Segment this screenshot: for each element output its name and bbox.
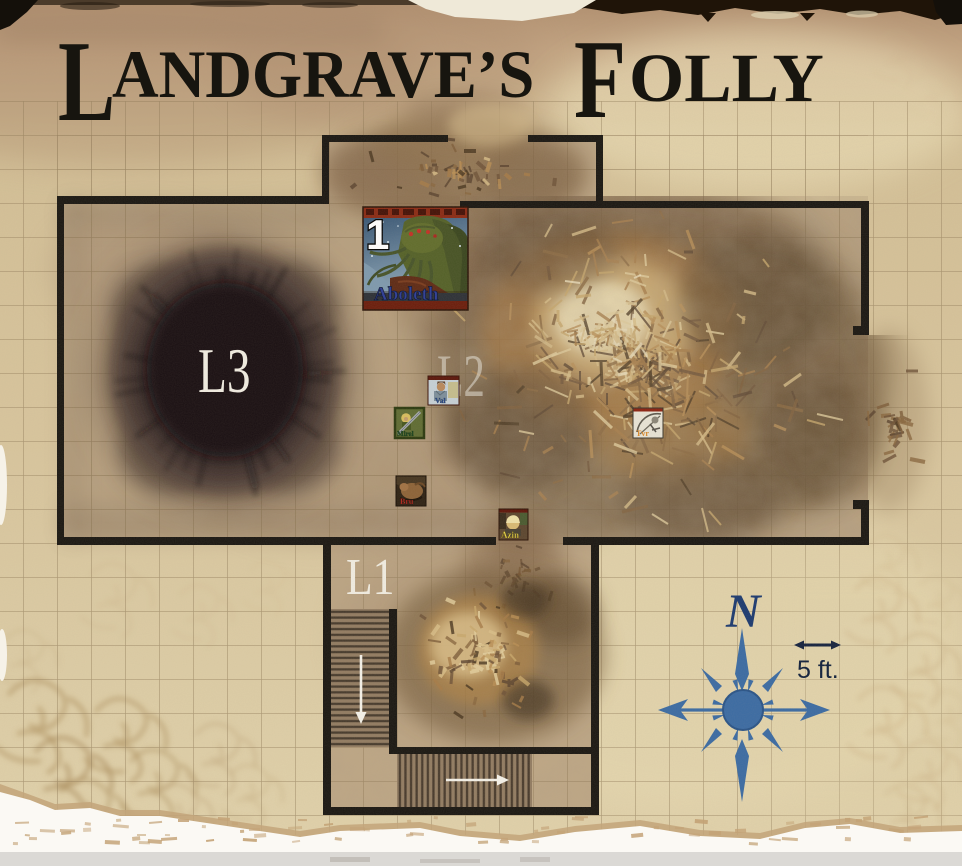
svg-text:OLLY: OLLY <box>629 41 824 117</box>
svg-text:F: F <box>574 17 626 142</box>
svg-text:ANDGRAVE’S: ANDGRAVE’S <box>112 38 534 113</box>
svg-text:L: L <box>58 18 115 146</box>
